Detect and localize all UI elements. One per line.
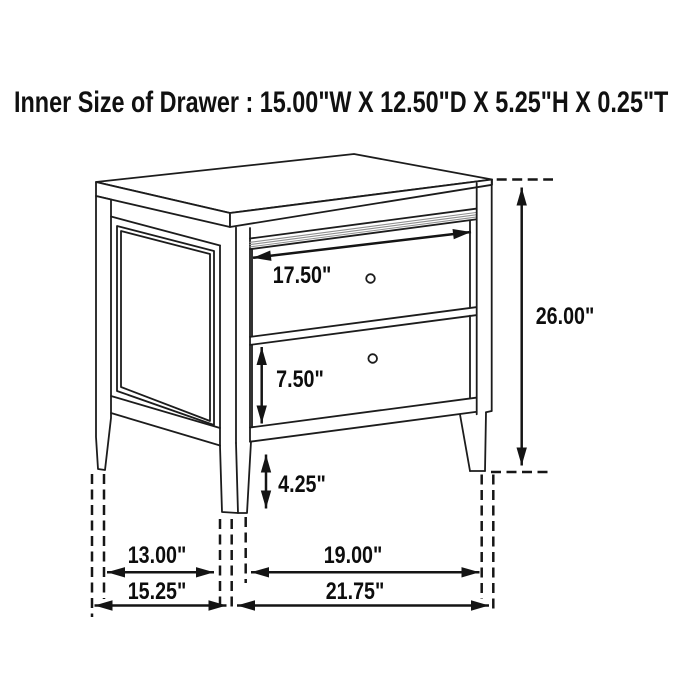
dim-label-overall-height: 26.00": [536, 305, 595, 329]
right-edge-and-leg: [460, 180, 492, 472]
diagram-title: Inner Size of Drawer : 15.00"W X 12.50"D…: [14, 88, 668, 118]
dimension-diagram: Inner Size of Drawer : 15.00"W X 12.50"D…: [0, 0, 700, 700]
dim-label-overall-depth: 15.25": [128, 580, 187, 604]
drawer-1-knob: [366, 274, 375, 283]
left-side-panel: [96, 196, 220, 470]
nightstand-drawing: [96, 154, 492, 513]
dim-label-drawer-opening-width: 17.50": [273, 264, 332, 288]
dim-label-width-between-legs: 19.00": [324, 544, 383, 568]
dim-label-leg-height: 4.25": [278, 473, 326, 497]
drawer-2-knob: [368, 354, 377, 363]
top-slab: [96, 154, 492, 227]
dim-label-drawer-face-height: 7.50": [276, 368, 324, 392]
dim-label-overall-width: 21.75": [326, 580, 385, 604]
front-left-post: [220, 228, 251, 514]
dim-label-depth-between-legs: 13.00": [128, 544, 187, 568]
